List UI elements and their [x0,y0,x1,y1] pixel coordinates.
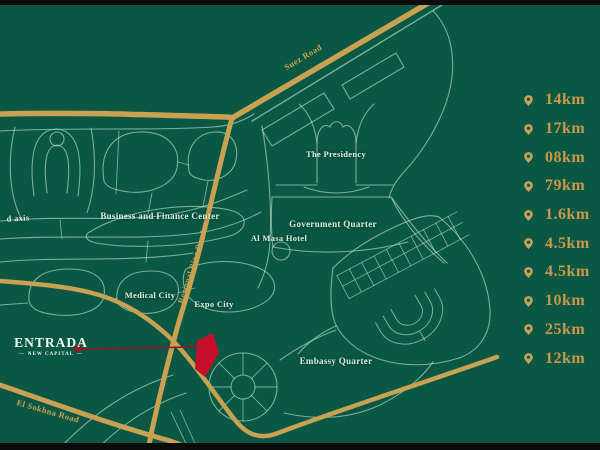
distance-item: 08km [522,143,590,172]
label-business-finance-center: Business and Finance Center [100,211,219,221]
map-pin-icon [522,235,535,252]
logo-flourish-left: — [19,352,25,357]
map-pin-icon [522,92,535,109]
map-pin-icon [522,264,535,281]
distance-value: 17km [545,120,585,138]
label-expo-city: Expo City [194,299,233,309]
map-pin-icon [522,149,535,166]
distance-value: 79km [545,177,585,195]
entrada-logo: ENTRADA — NEW CAPITAL — [10,336,92,357]
label-government-quarter: Government Quarter [289,219,377,229]
label-al-masa-hotel: Al Masa Hotel [251,233,307,243]
distance-value: 12km [545,350,585,368]
location-map-screenshot: d axis Business and Finance Center The P… [0,0,600,450]
distance-item: 4.5km [522,229,590,258]
logo-name: ENTRADA [10,336,92,351]
letterbox-top [0,0,600,5]
gold-road-north-horizontal [0,113,233,118]
distance-value: 4.5km [545,263,590,281]
logo-subtitle: — NEW CAPITAL — [10,352,92,357]
site-pointer [71,333,219,377]
map-pin-icon [522,350,535,367]
distance-item: 10km [522,287,590,316]
label-embassy-quarter: Embassy Quarter [300,356,373,366]
distance-item: 79km [522,172,590,201]
map-pin-icon [522,178,535,195]
label-the-presidency: The Presidency [306,149,366,159]
label-axis: d axis [6,212,29,223]
map-pin-icon [522,321,535,338]
label-medical-city: Medical City [125,290,176,300]
distance-value: 10km [545,292,585,310]
distance-item: 4.5km [522,258,590,287]
distance-item: 17km [522,115,590,144]
highways [0,2,497,450]
distance-item: 25km [522,316,590,345]
site-marker [195,333,219,377]
distance-item: 14km [522,86,590,115]
distance-item: 1.6km [522,201,590,230]
letterbox-bottom [0,443,600,450]
distance-item: 12km [522,344,590,373]
map-pin-icon [522,121,535,138]
distance-value: 4.5km [545,235,590,253]
distance-value: 08km [545,149,585,167]
map-pin-icon [522,207,535,224]
gold-road-el-sokhna [0,385,192,450]
map-pin-icon [522,293,535,310]
distance-value: 25km [545,321,585,339]
logo-subtitle-text: NEW CAPITAL [28,352,74,357]
distance-value: 14km [545,91,585,109]
logo-flourish-right: — [77,352,83,357]
distance-value: 1.6km [545,206,590,224]
distance-list: 14km 17km 08km 79km 1.6km 4.5km 4.5km 1 [522,86,590,373]
